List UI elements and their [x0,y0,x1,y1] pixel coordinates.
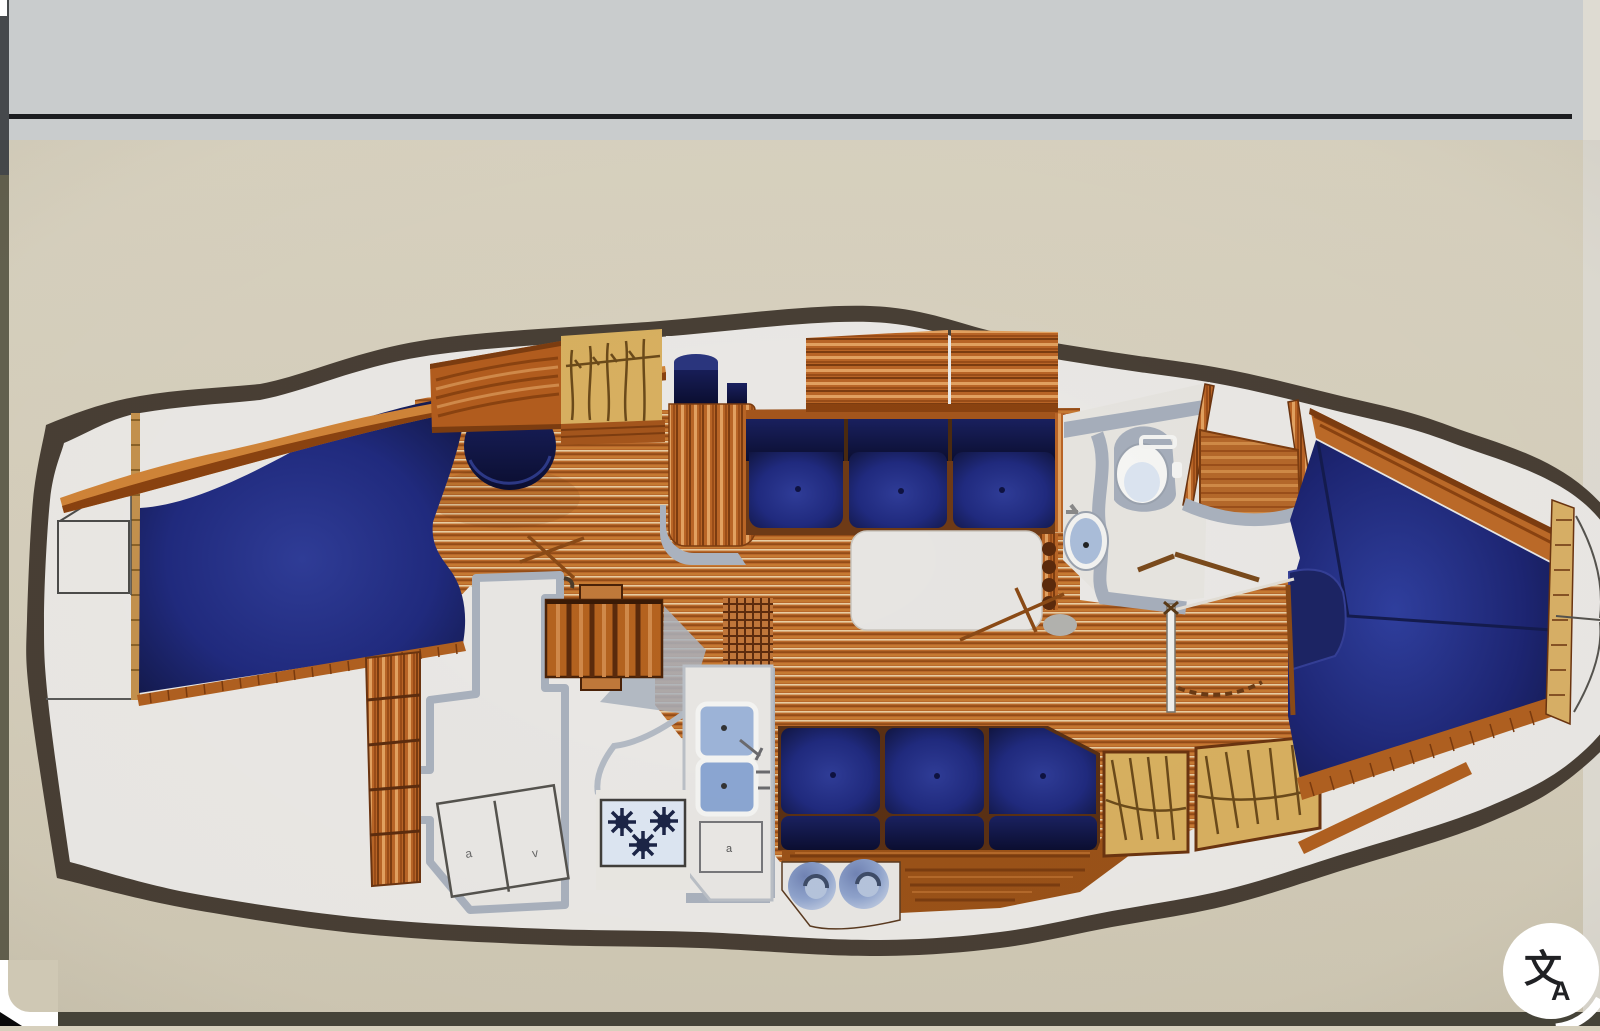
svg-text:A: A [1551,976,1571,1006]
